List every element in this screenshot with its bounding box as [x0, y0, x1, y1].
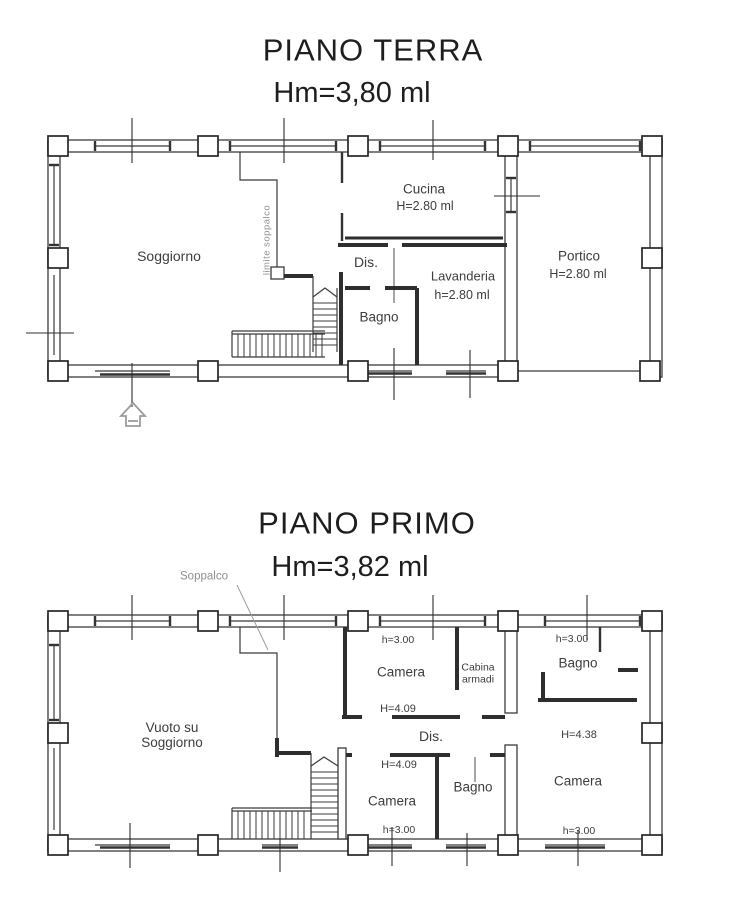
first-floor-height-note: Hm=3,82 ml [271, 551, 428, 583]
floor-plan-document: PIANO TERRA Hm=3,80 ml Soggiorno Cucina … [0, 0, 756, 900]
cabina-line-1: Cabina [461, 662, 494, 674]
room-height-cucina: H=2.80 ml [396, 199, 453, 213]
first-floor-title: PIANO PRIMO [258, 507, 476, 542]
window-symbols-ground-left [49, 165, 516, 355]
soppalco-label: Soppalco [180, 571, 228, 584]
room-label-dis-first: Dis. [419, 729, 443, 745]
vuoto-line-1: Vuoto su [141, 720, 203, 735]
room-label-lavanderia: Lavanderia [431, 270, 495, 285]
height-camera-mid-low: h=3.00 [383, 825, 415, 837]
room-label-bagno-ground: Bagno [359, 309, 398, 324]
vuoto-line-2: Soggiorno [141, 735, 203, 750]
room-height-lavanderia: h=2.80 ml [434, 288, 489, 302]
room-label-cabina-armadi: Cabina armadi [461, 662, 494, 686]
room-label-camera-right: Camera [554, 773, 602, 788]
room-label-cucina: Cucina [403, 181, 445, 196]
stairs-first [232, 753, 338, 839]
height-camera-right-high: H=4.38 [561, 729, 597, 741]
height-bagno-right: h=3.00 [556, 634, 588, 646]
ground-floor-height-note: Hm=3,80 ml [273, 77, 430, 109]
room-label-vuoto-su-soggiorno: Vuoto su Soggiorno [141, 720, 203, 750]
room-height-portico: H=2.80 ml [549, 267, 606, 281]
cabina-line-2: armadi [461, 674, 494, 686]
limite-soppalco-label: limite soppalco [263, 205, 274, 275]
room-label-camera-top: Camera [377, 664, 425, 679]
ground-floor-title: PIANO TERRA [263, 34, 484, 69]
room-label-portico: Portico [558, 248, 600, 263]
height-camera-top-high: H=4.09 [380, 703, 416, 715]
dimension-ticks-ground [26, 118, 540, 407]
room-label-bagno-mid: Bagno [453, 779, 492, 794]
floorplan-drawing [0, 0, 756, 900]
height-camera-top-low: h=3.00 [382, 635, 414, 647]
room-label-bagno-right: Bagno [558, 655, 597, 670]
height-camera-right-low: h=3.00 [563, 826, 595, 838]
room-label-soggiorno: Soggiorno [137, 249, 201, 265]
stairs-ground [232, 276, 337, 357]
entrance-arrow-icon [121, 403, 145, 426]
room-label-camera-mid: Camera [368, 793, 416, 808]
height-camera-mid-high: H=4.09 [381, 759, 417, 771]
room-label-dis-ground: Dis. [354, 255, 378, 271]
